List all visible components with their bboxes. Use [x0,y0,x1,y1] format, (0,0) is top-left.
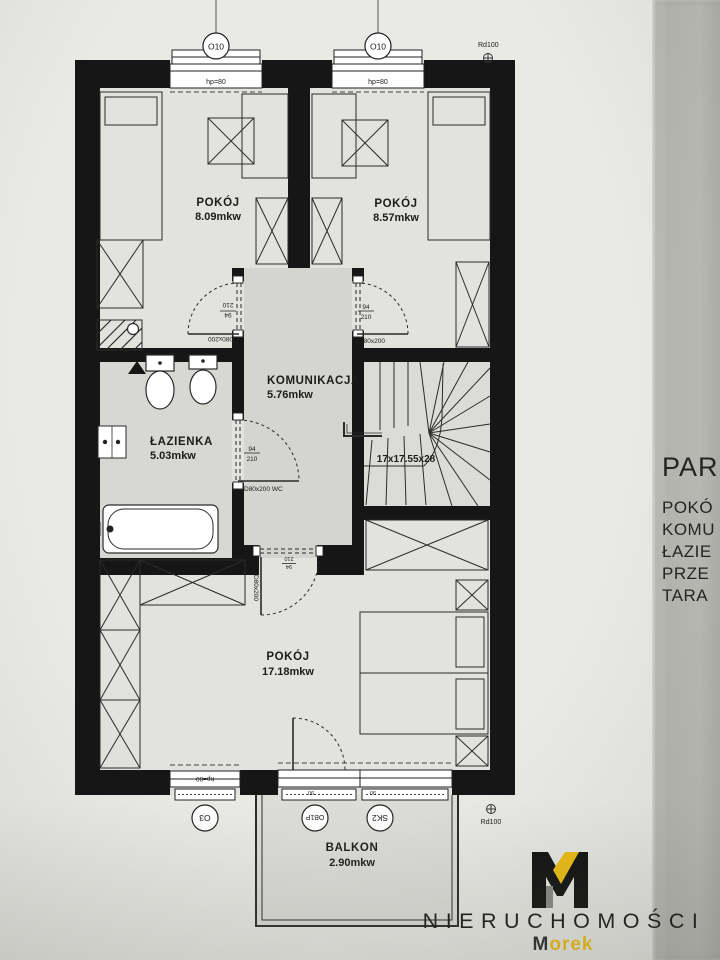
window-sill-height: hp=80 [368,79,388,86]
room-area: 5.03mkw [150,450,196,462]
door-height: 210 [361,314,372,321]
room-name: KOMUNIKACJA [267,375,360,387]
agency-logo: NIERUCHOMOŚCI Morek [423,852,706,955]
room-name: BALKON [326,842,379,854]
washing-machine-icon [98,426,126,458]
drain-marker-top: Rd100 [478,42,499,63]
window-sill-height: hp=80 [206,79,226,86]
room-area: 5.76mkw [267,389,313,401]
window-symbol-label: O3 [199,813,211,823]
door-height: 210 [247,456,258,463]
window-sill-height: hp=80 [195,775,214,782]
unit-width-mark: 90 [308,789,314,795]
toilet-icon [189,355,217,404]
scanned-floor-plan-photo: O10 hp=80 O10 hp=80 Rd100 Rd100 [0,0,720,960]
door-height: 210 [284,555,293,561]
legend-item: PRZE [662,563,720,585]
window-symbol-label: SK2 [372,813,388,823]
door-size-label: D80x200 WC [244,486,283,493]
stairs-dimensions: 17x17.55x28 [377,454,436,465]
window-o3: hp=80 O3 [170,765,240,831]
legend-item: POKÓ [662,497,720,519]
door-size-label: D80x200 [208,335,234,342]
room-area: 8.09mkw [195,211,241,223]
room-name: ŁAZIENKA [150,436,213,448]
drain-marker-bottom: Rd100 [481,805,502,827]
window-o10-left: O10 hp=80 [170,0,262,92]
legend-panel: PAR POKÓ KOMU ŁAZIE PRZE TARA [662,452,720,607]
room-name: POKÓJ [374,197,417,210]
room-area: 2.90mkw [329,857,375,869]
logo-name-suffix: orek [549,934,593,955]
window-symbol-label: O10 [208,42,224,52]
legend-item: KOMU [662,519,720,541]
washbasin-icon [146,355,174,409]
door-height: 210 [222,301,233,308]
logo-name-prefix: M [533,934,550,955]
room-area: 17.18mkw [262,666,314,678]
logo-m-gray-icon [546,886,553,908]
legend-item: TARA [662,585,720,607]
logo-brand-text: NIERUCHOMOŚCI [423,908,706,933]
door-width: 94 [362,304,370,311]
unit-width-mark: 90 [370,789,376,795]
door-size-label: D80x200 [252,575,259,601]
drain-label: Rd100 [478,42,499,49]
door-width: 94 [224,311,232,318]
room-name: POKÓJ [196,196,239,209]
window-o10-right: O10 hp=80 [332,0,424,92]
door-width: 94 [248,446,256,453]
legend-item: ŁAZIE [662,541,720,563]
door-size-label: D80x200 [359,338,385,345]
bathtub-icon [100,505,218,553]
drain-label: Rd100 [481,819,502,826]
logo-name-text: Morek [533,934,594,955]
room-name: POKÓJ [266,650,309,663]
window-symbol-label: OB1P [305,813,324,820]
legend-heading: PAR [662,452,720,483]
floor-plan-drawing: O10 hp=80 O10 hp=80 Rd100 Rd100 [0,0,720,960]
room-area: 8.57mkw [373,212,419,224]
window-symbol-label: O10 [370,42,386,52]
